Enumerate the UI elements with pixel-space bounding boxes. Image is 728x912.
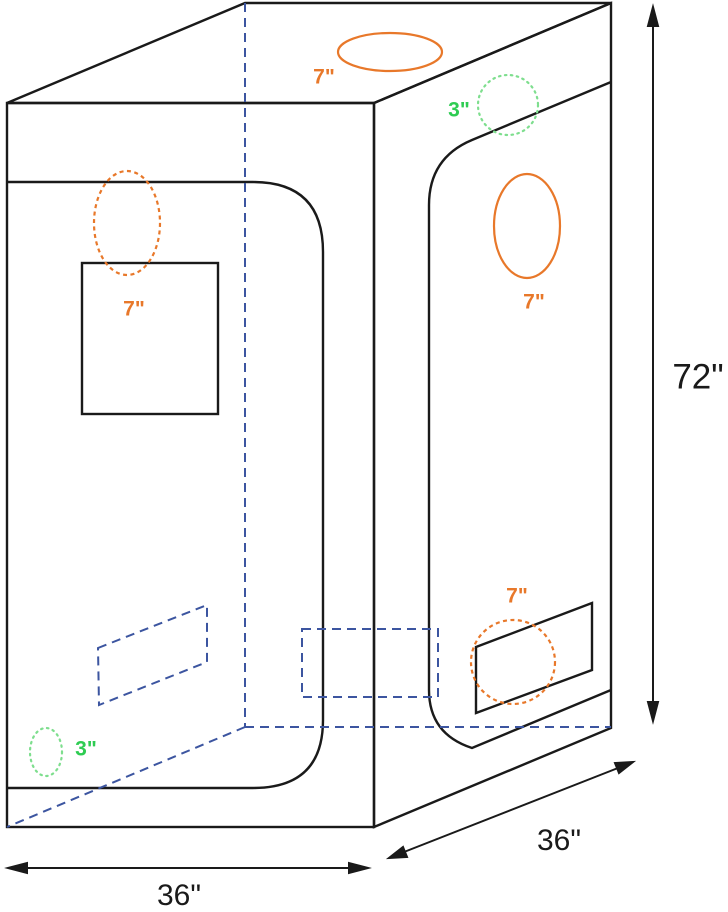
right-lower-vent-label: 7" <box>506 586 528 607</box>
depth-arrowhead-near <box>389 847 407 858</box>
width-dimension-label: 36" <box>157 881 201 911</box>
right-door-zipper-line <box>429 82 611 748</box>
top-face-outline <box>7 3 611 103</box>
dimension-arrows <box>8 7 658 873</box>
right-face-outline <box>374 3 611 827</box>
front-window-rect <box>82 263 218 414</box>
height-dimension-label: 72" <box>672 360 723 395</box>
depth-dimension-line <box>404 768 618 852</box>
tent-line-drawing <box>0 0 728 912</box>
front-upper-vent-label: 7" <box>123 299 145 320</box>
depth-dimension-label: 36" <box>537 826 581 856</box>
height-arrowhead-bottom <box>648 702 658 721</box>
right-lower-duct-window <box>476 603 592 713</box>
front-bottom-vent-ellipse <box>30 728 62 776</box>
front-bottom-vent-label: 3" <box>75 739 97 760</box>
grow-tent-dimension-diagram: 7" 3" 7" 7" 7" 3" 72" 36" 36" <box>0 0 728 912</box>
front-face-outline <box>7 103 374 827</box>
right-upper-vent-label: 7" <box>523 292 545 313</box>
top-vent-ellipse <box>338 33 442 71</box>
height-arrowhead-top <box>648 7 658 26</box>
depth-arrowhead-far <box>615 762 633 773</box>
top-vent-label: 7" <box>313 67 335 88</box>
width-arrowhead-right <box>349 863 368 873</box>
front-upper-vent-ellipse <box>94 171 160 275</box>
hidden-left-bottom-edge <box>7 727 245 827</box>
width-arrowhead-left <box>8 863 27 873</box>
right-top-vent-label: 3" <box>448 100 470 121</box>
right-upper-vent-ellipse <box>494 174 560 278</box>
hidden-left-vent-rect <box>98 605 207 705</box>
front-door-zipper-line <box>7 182 323 788</box>
